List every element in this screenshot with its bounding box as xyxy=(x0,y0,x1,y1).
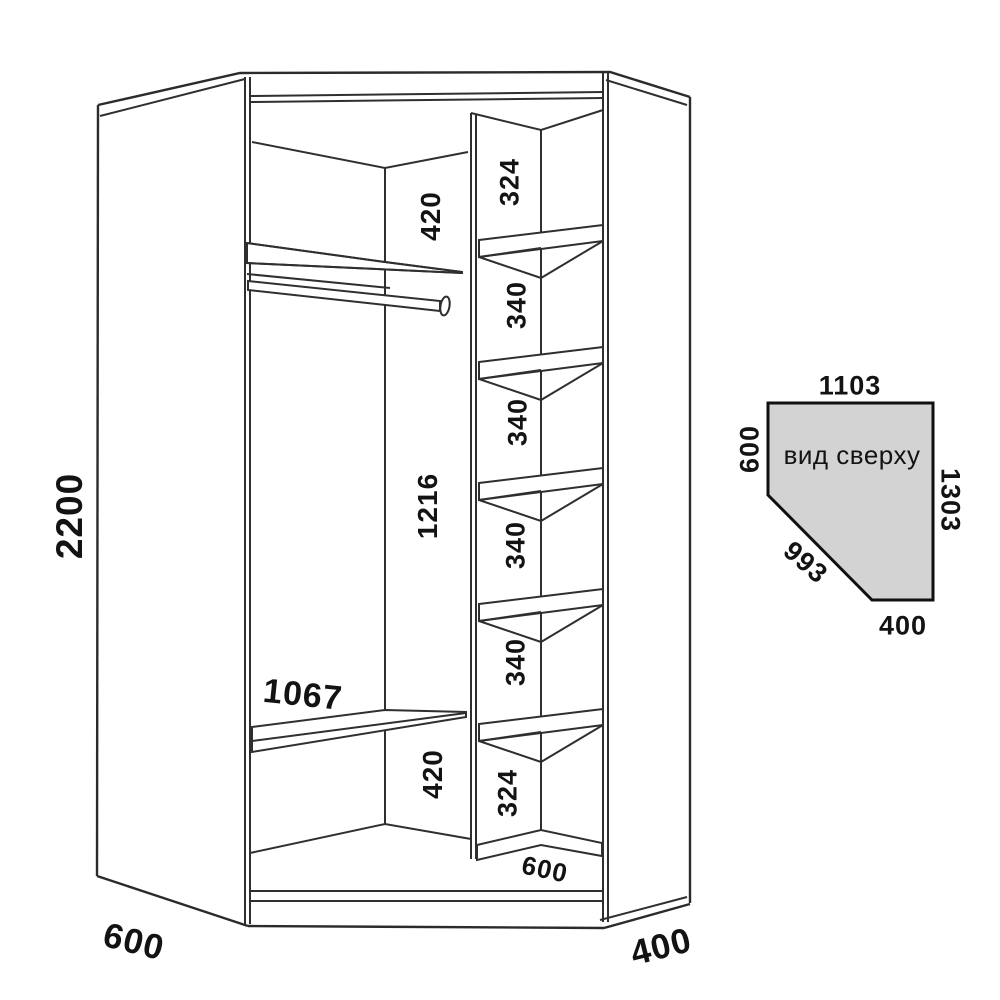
dim-depth-right: 400 xyxy=(627,920,696,973)
dim-column-section: 340 xyxy=(500,638,530,686)
dim-column-section: 324 xyxy=(492,769,522,817)
dim-upper-gap: 420 xyxy=(415,191,446,241)
dim-top-view-bottom: 400 xyxy=(879,610,927,640)
dim-column-section: 340 xyxy=(500,521,530,569)
dim-depth-left: 600 xyxy=(99,915,168,968)
dim-rail-section: 1216 xyxy=(412,473,443,539)
top-view: вид сверху 1103 600 1303 993 400 xyxy=(734,370,965,640)
dim-top-view-right-depth: 1303 xyxy=(936,468,966,532)
diagram-canvas: 2200 600 400 1067 420 1216 420 324 340 3… xyxy=(0,0,1000,1000)
dim-column-section: 324 xyxy=(494,158,524,206)
dim-lower-gap: 420 xyxy=(417,749,448,799)
top-view-title: вид сверху xyxy=(784,440,921,470)
shelf-column xyxy=(471,110,603,860)
dim-column-depth: 600 xyxy=(519,850,571,889)
hanging-rail xyxy=(247,243,462,316)
cabinet-outer-frame xyxy=(97,72,690,928)
dim-top-view-width: 1103 xyxy=(819,370,882,400)
wardrobe-technical-drawing: 2200 600 400 1067 420 1216 420 324 340 3… xyxy=(0,0,1000,1000)
wide-shelf xyxy=(252,710,466,752)
rod-end-cap xyxy=(439,296,451,316)
dim-column-section: 340 xyxy=(501,281,531,329)
dim-top-view-left-depth: 600 xyxy=(734,425,764,473)
dim-column-section: 340 xyxy=(502,398,532,446)
dim-shelf-length: 1067 xyxy=(261,672,344,718)
clothes-rod xyxy=(248,281,440,311)
dim-overall-height: 2200 xyxy=(49,473,90,559)
